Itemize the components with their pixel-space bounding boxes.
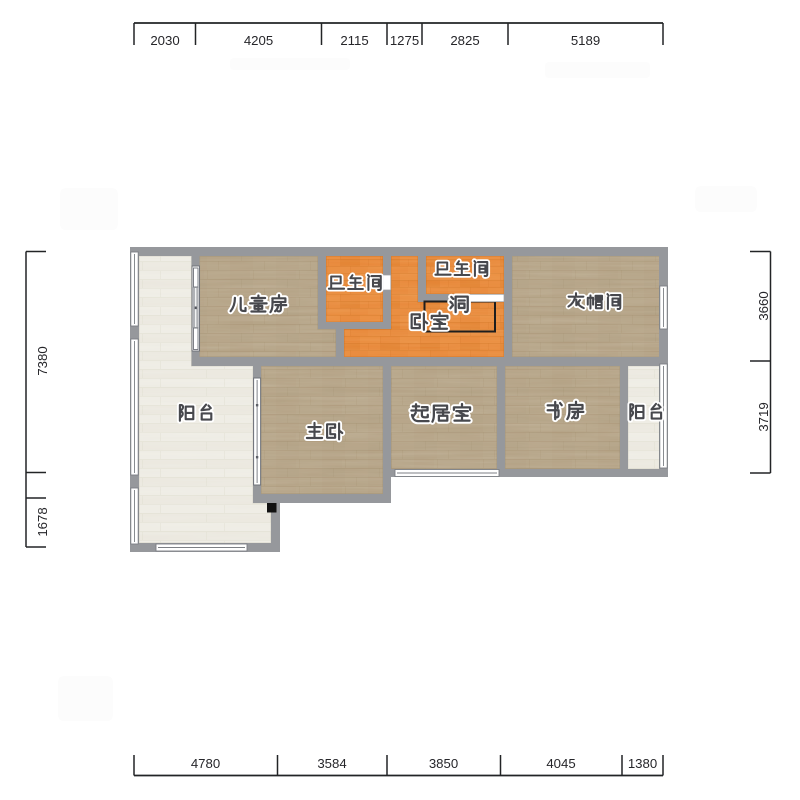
svg-text:1380: 1380	[628, 756, 657, 771]
svg-text:3719: 3719	[756, 402, 771, 431]
svg-text:4780: 4780	[191, 756, 220, 771]
svg-text:1275: 1275	[390, 33, 419, 48]
svg-text:4045: 4045	[546, 756, 575, 771]
svg-text:2825: 2825	[450, 33, 479, 48]
svg-text:4205: 4205	[244, 33, 273, 48]
svg-text:3660: 3660	[756, 291, 771, 320]
svg-text:2115: 2115	[340, 33, 368, 48]
svg-text:5189: 5189	[571, 33, 600, 48]
svg-text:7380: 7380	[35, 346, 50, 375]
svg-text:2030: 2030	[150, 33, 179, 48]
svg-text:3850: 3850	[429, 756, 458, 771]
svg-text:3584: 3584	[317, 756, 346, 771]
svg-text:1678: 1678	[35, 507, 50, 536]
